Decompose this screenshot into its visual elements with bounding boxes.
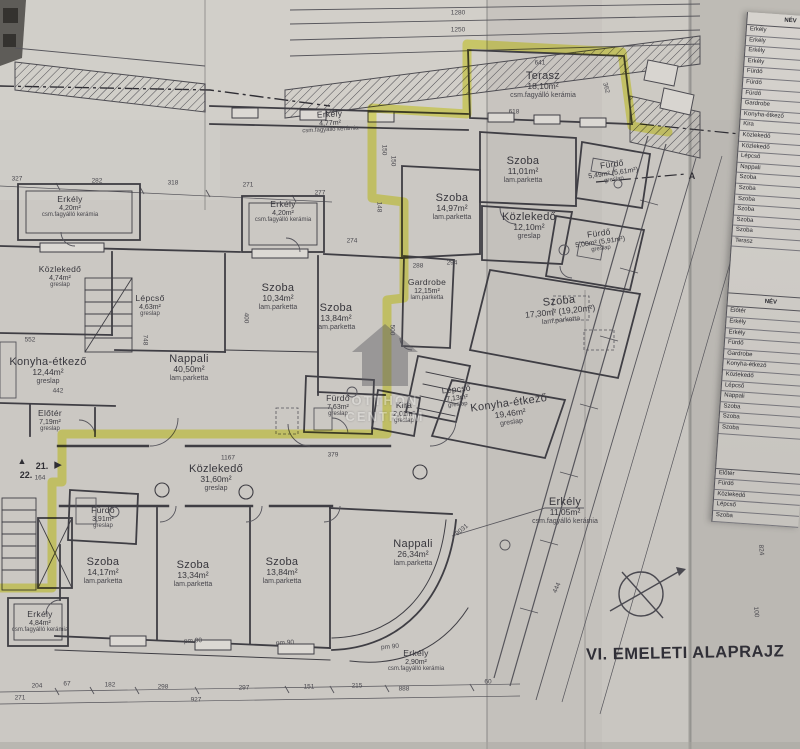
legend-gap [728,247,800,300]
watermark-house-icon [350,322,420,388]
legend-gap [716,434,800,475]
drawing-title: VI. EMELETI ALAPRAJZ [586,642,786,664]
watermark-text-line1: OTTHON [330,393,440,409]
agency-watermark: OTTHON CENTRUM [330,322,440,452]
floor-plan-photo: { "document": { "title": "VI. EMELETI AL… [0,0,800,749]
watermark-text-line2: CENTRUM [330,409,440,425]
